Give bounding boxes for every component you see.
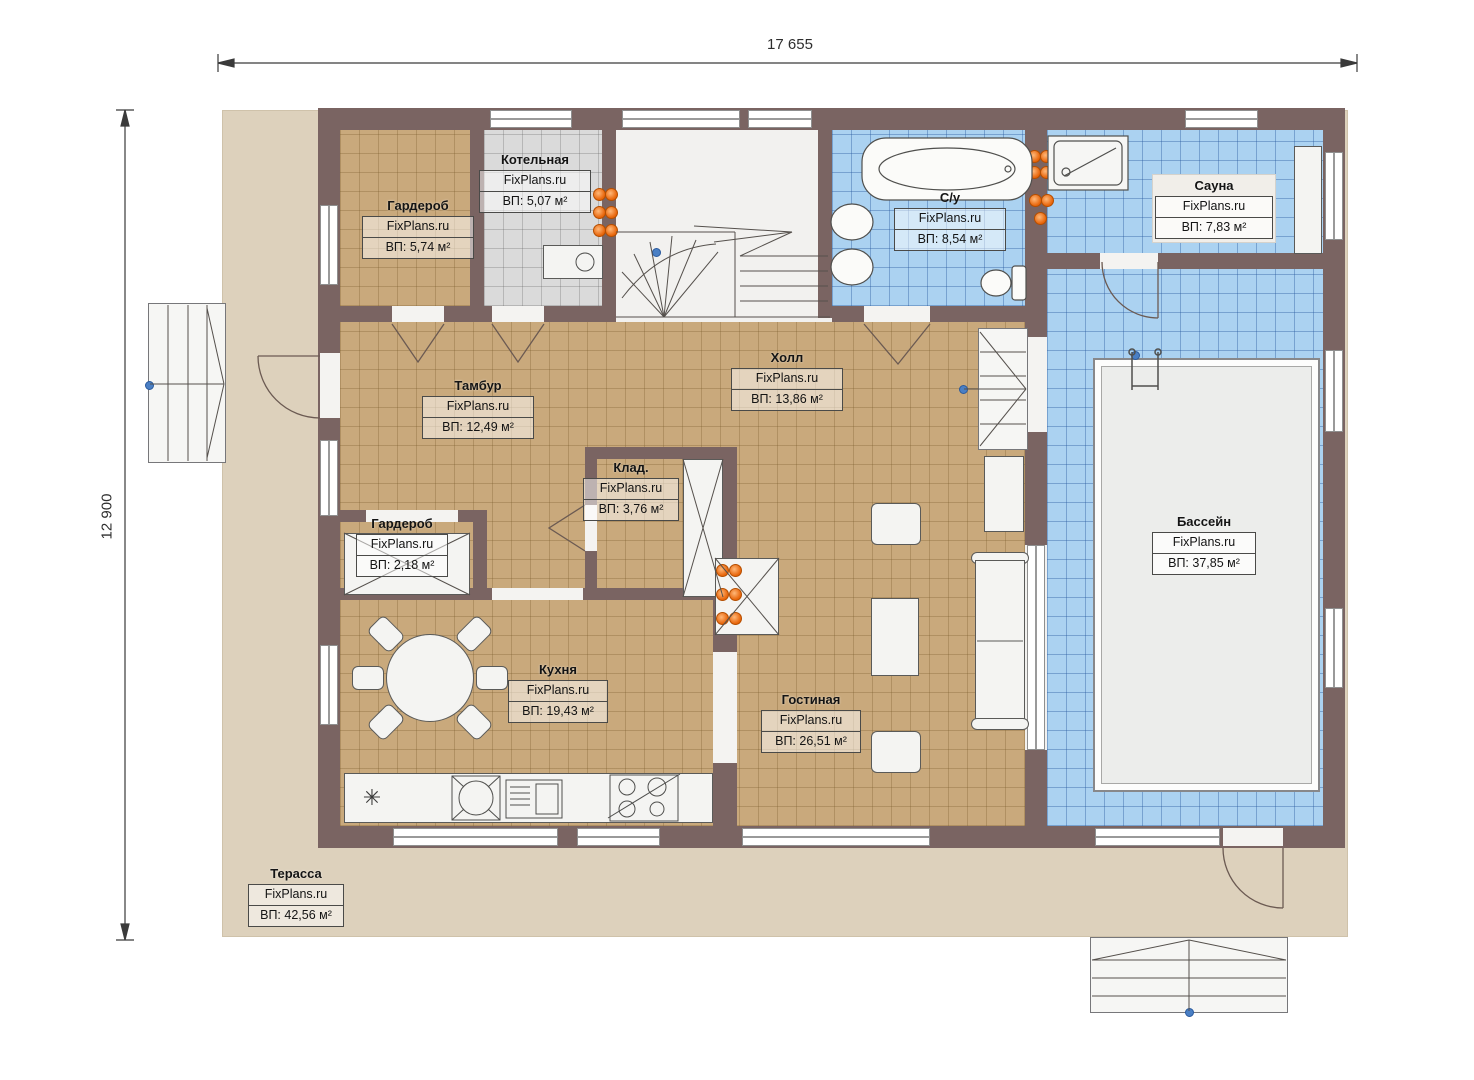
dining-chair xyxy=(476,666,508,690)
brand-text: FixPlans.ru xyxy=(1156,197,1272,217)
window xyxy=(1095,828,1220,846)
room-area: ВП: 12,49 м² xyxy=(423,417,533,438)
boiler-unit xyxy=(543,245,603,279)
room-name: Холл xyxy=(731,350,843,366)
radiator-dot xyxy=(1034,212,1047,225)
room-info-box: FixPlans.ru ВП: 42,56 м² xyxy=(248,884,344,926)
room-info-box: FixPlans.ru ВП: 37,85 м² xyxy=(1152,532,1256,574)
brand-text: FixPlans.ru xyxy=(732,369,842,389)
sofa xyxy=(975,560,1025,722)
room-info-box: FixPlans.ru ВП: 19,43 м² xyxy=(508,680,608,722)
room-name: Гостиная xyxy=(761,692,861,708)
room-area: ВП: 8,54 м² xyxy=(895,229,1005,250)
door-gap xyxy=(392,306,444,322)
hall-pool-steps xyxy=(978,328,1028,450)
room-area: ВП: 3,76 м² xyxy=(584,499,678,520)
dimension-height-label: 12 900 xyxy=(99,472,116,562)
brand-text: FixPlans.ru xyxy=(480,171,590,191)
node-dot xyxy=(1185,1008,1194,1017)
window xyxy=(320,205,338,285)
wall-stairs-bathroom xyxy=(818,130,832,318)
back-exterior-steps xyxy=(1090,937,1288,1013)
window xyxy=(393,828,558,846)
room-label-storage: Клад. FixPlans.ru ВП: 3,76 м² xyxy=(583,460,679,521)
floor-plan: 17 655 12 900 xyxy=(0,0,1474,1080)
radiator-dot xyxy=(729,564,742,577)
room-label-sauna: Сауна FixPlans.ru ВП: 7,83 м² xyxy=(1152,174,1276,243)
window xyxy=(1185,110,1258,128)
room-label-kitchen: Кухня FixPlans.ru ВП: 19,43 м² xyxy=(508,662,608,723)
window xyxy=(1325,608,1343,688)
window xyxy=(577,828,660,846)
room-area: ВП: 2,18 м² xyxy=(357,555,447,576)
room-name: Сауна xyxy=(1155,178,1273,194)
wall-kitchen-living xyxy=(713,763,737,826)
room-info-box: FixPlans.ru ВП: 7,83 м² xyxy=(1155,196,1273,238)
room-label-terrace: Терасса FixPlans.ru ВП: 42,56 м² xyxy=(248,866,344,927)
dining-chair xyxy=(352,666,384,690)
room-info-box: FixPlans.ru ВП: 5,74 м² xyxy=(362,216,474,258)
node-dot xyxy=(959,385,968,394)
brand-text: FixPlans.ru xyxy=(762,711,860,731)
door-gap xyxy=(492,306,544,322)
room-name: Котельная xyxy=(479,152,591,168)
room-info-box: FixPlans.ru ВП: 26,51 м² xyxy=(761,710,861,752)
radiator-dot xyxy=(716,564,729,577)
window xyxy=(320,645,338,725)
room-label-wardrobe-2: Гардероб FixPlans.ru ВП: 2,18 м² xyxy=(356,516,448,577)
room-label-vestibule: Тамбур FixPlans.ru ВП: 12,49 м² xyxy=(422,378,534,439)
radiator-dot xyxy=(605,188,618,201)
sofa-armrest xyxy=(971,718,1029,730)
armchair xyxy=(871,503,921,545)
wall-wardrobe2-right xyxy=(473,510,487,600)
entry-porch-steps xyxy=(148,303,226,463)
wall-seg xyxy=(340,306,392,322)
room-name: Гардероб xyxy=(356,516,448,532)
room-area: ВП: 13,86 м² xyxy=(732,389,842,410)
front-door-gap xyxy=(320,353,340,418)
window xyxy=(622,110,740,128)
room-name: Тамбур xyxy=(422,378,534,394)
room-label-boiler: Котельная FixPlans.ru ВП: 5,07 м² xyxy=(479,152,591,213)
room-label-wardrobe-1: Гардероб FixPlans.ru ВП: 5,74 м² xyxy=(362,198,474,259)
node-dot xyxy=(145,381,154,390)
brand-text: FixPlans.ru xyxy=(895,209,1005,229)
node-dot xyxy=(1131,351,1140,360)
room-name: Бассейн xyxy=(1152,514,1256,530)
pool-water xyxy=(1101,366,1312,784)
room-label-hall: Холл FixPlans.ru ВП: 13,86 м² xyxy=(731,350,843,411)
wall-living-pool xyxy=(1025,750,1047,826)
fridge-icon: ✳ xyxy=(348,777,396,819)
window xyxy=(490,110,572,128)
wall-seg xyxy=(930,306,1025,322)
wall-storage-top xyxy=(585,447,737,459)
door-gap-sauna xyxy=(1100,253,1158,269)
window xyxy=(742,828,930,846)
armchair xyxy=(871,731,921,773)
node-dot xyxy=(652,248,661,257)
brand-text: FixPlans.ru xyxy=(363,217,473,237)
room-name: Терасса xyxy=(248,866,344,882)
radiator-dot xyxy=(716,612,729,625)
room-label-pool: Бассейн FixPlans.ru ВП: 37,85 м² xyxy=(1152,514,1256,575)
dimension-width-label: 17 655 xyxy=(730,36,850,53)
door-gap xyxy=(864,306,930,322)
window xyxy=(320,440,338,516)
brand-text: FixPlans.ru xyxy=(249,885,343,905)
room-info-box: FixPlans.ru ВП: 3,76 м² xyxy=(583,478,679,520)
room-label-living-room: Гостиная FixPlans.ru ВП: 26,51 м² xyxy=(761,692,861,753)
radiator-dot xyxy=(729,588,742,601)
brand-text: FixPlans.ru xyxy=(423,397,533,417)
radiator-dot xyxy=(1040,166,1053,179)
coffee-table xyxy=(871,598,919,676)
brand-text: FixPlans.ru xyxy=(509,681,607,701)
room-info-box: FixPlans.ru ВП: 8,54 м² xyxy=(894,208,1006,250)
room-info-box: FixPlans.ru ВП: 13,86 м² xyxy=(731,368,843,410)
room-name: С/у xyxy=(894,190,1006,206)
sauna-bench xyxy=(1294,146,1322,254)
opening-kitchen-living xyxy=(713,652,737,763)
brand-text: FixPlans.ru xyxy=(584,479,678,499)
radiator-dot xyxy=(716,588,729,601)
wall-sauna-bottom xyxy=(1047,253,1100,269)
room-area: ВП: 7,83 м² xyxy=(1156,217,1272,238)
room-area: ВП: 5,74 м² xyxy=(363,237,473,258)
room-area: ВП: 42,56 м² xyxy=(249,905,343,926)
glass-wall-living-pool xyxy=(1027,545,1045,750)
hall-cabinet xyxy=(984,456,1024,532)
wall-seg xyxy=(544,306,616,322)
room-area: ВП: 26,51 м² xyxy=(762,731,860,752)
radiator-dot xyxy=(605,224,618,237)
room-area: ВП: 19,43 м² xyxy=(509,701,607,722)
window xyxy=(748,110,812,128)
window xyxy=(1325,350,1343,432)
room-info-box: FixPlans.ru ВП: 5,07 м² xyxy=(479,170,591,212)
radiator-dot xyxy=(729,612,742,625)
wall-seg xyxy=(444,306,492,322)
room-area: ВП: 5,07 м² xyxy=(480,191,590,212)
back-door-gap xyxy=(1223,828,1283,846)
room-name: Гардероб xyxy=(362,198,474,214)
room-info-box: FixPlans.ru ВП: 2,18 м² xyxy=(356,534,448,576)
room-info-box: FixPlans.ru ВП: 12,49 м² xyxy=(422,396,534,438)
wall-sauna-bottom xyxy=(1158,253,1323,269)
radiator-dot xyxy=(1041,194,1054,207)
window xyxy=(1325,152,1343,240)
wall-seg xyxy=(832,306,864,322)
room-area: ВП: 37,85 м² xyxy=(1153,553,1255,574)
brand-text: FixPlans.ru xyxy=(357,535,447,555)
door-gap-kitchen xyxy=(492,588,583,600)
brand-text: FixPlans.ru xyxy=(1153,533,1255,553)
room-name: Кухня xyxy=(508,662,608,678)
room-name: Клад. xyxy=(583,460,679,476)
room-label-bathroom: С/у FixPlans.ru ВП: 8,54 м² xyxy=(894,190,1006,251)
wall-hall-pool xyxy=(1025,432,1047,545)
opening-hall-pool-stairs xyxy=(1025,337,1047,432)
radiator-dot xyxy=(1040,150,1053,163)
kitchen-counter xyxy=(344,773,713,823)
radiator-dot xyxy=(605,206,618,219)
dining-table xyxy=(386,634,474,722)
